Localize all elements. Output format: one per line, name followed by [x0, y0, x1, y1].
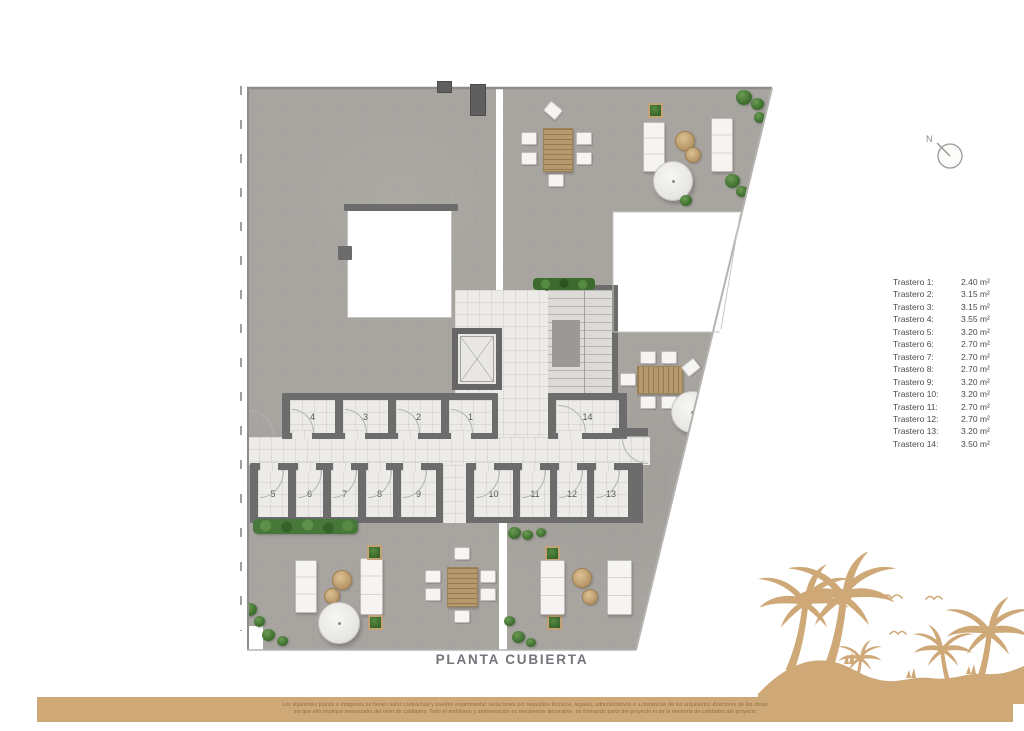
- legend-value: 3.20 m²: [961, 376, 990, 388]
- legend-row: Trastero 3:3.15 m²: [893, 301, 1023, 313]
- legend-label: Trastero 1:: [893, 276, 961, 288]
- legend-value: 2.70 m²: [961, 363, 990, 375]
- legend-label: Trastero 6:: [893, 338, 961, 350]
- legend-label: Trastero 5:: [893, 326, 961, 338]
- legend-label: Trastero 11:: [893, 401, 961, 413]
- legend-value: 2.70 m²: [961, 401, 990, 413]
- legend-label: Trastero 7:: [893, 351, 961, 363]
- legend-value: 3.15 m²: [961, 301, 990, 313]
- north-label: N: [926, 134, 933, 144]
- storage-legend: Trastero 1:2.40 m² Trastero 2:3.15 m² Tr…: [893, 276, 1023, 450]
- legend-value: 3.55 m²: [961, 313, 990, 325]
- legend-row: Trastero 10:3.20 m²: [893, 388, 1023, 400]
- legend-row: Trastero 14:3.50 m²: [893, 438, 1023, 450]
- legend-label: Trastero 9:: [893, 376, 961, 388]
- legend-row: Trastero 1:2.40 m²: [893, 276, 1023, 288]
- floor-plan: 4 3 2 1 14 5 6 7 8 9 10 11 12 13: [232, 78, 790, 662]
- legend-row: Trastero 5:3.20 m²: [893, 326, 1023, 338]
- legend-value: 2.70 m²: [961, 351, 990, 363]
- disclaimer-line-1: Los siguientes planos e imágenes no tien…: [37, 702, 1013, 709]
- legend-value: 3.20 m²: [961, 326, 990, 338]
- legend-value: 3.20 m²: [961, 388, 990, 400]
- disclaimer-line-2: sin que ello implique menoscabo del nive…: [37, 709, 1013, 716]
- legend-row: Trastero 9:3.20 m²: [893, 376, 1023, 388]
- legend-value: 2.40 m²: [961, 276, 990, 288]
- disclaimer-band: Los siguientes planos e imágenes no tien…: [37, 697, 1013, 722]
- legend-value: 3.15 m²: [961, 288, 990, 300]
- legend-row: Trastero 11:2.70 m²: [893, 401, 1023, 413]
- legend-label: Trastero 14:: [893, 438, 961, 450]
- property-boundary-dashes: [240, 86, 242, 631]
- legend-label: Trastero 12:: [893, 413, 961, 425]
- legend-row: Trastero 13:3.20 m²: [893, 425, 1023, 437]
- bird-icon: [926, 597, 942, 600]
- legend-row: Trastero 7:2.70 m²: [893, 351, 1023, 363]
- floorplan-page: 4 3 2 1 14 5 6 7 8 9 10 11 12 13: [0, 0, 1024, 731]
- legend-row: Trastero 6:2.70 m²: [893, 338, 1023, 350]
- palm-beach-silhouette: [758, 552, 1024, 704]
- legend-value: 2.70 m²: [961, 413, 990, 425]
- bird-icon: [890, 632, 906, 635]
- legend-label: Trastero 4:: [893, 313, 961, 325]
- plan-outline: [232, 78, 790, 662]
- legend-value: 2.70 m²: [961, 338, 990, 350]
- legend-label: Trastero 2:: [893, 288, 961, 300]
- north-indicator: N: [920, 128, 970, 178]
- legend-label: Trastero 10:: [893, 388, 961, 400]
- legend-label: Trastero 3:: [893, 301, 961, 313]
- legend-label: Trastero 8:: [893, 363, 961, 375]
- chimney-block: [437, 81, 452, 93]
- chimney-block: [470, 84, 486, 116]
- legend-row: Trastero 4:3.55 m²: [893, 313, 1023, 325]
- legend-row: Trastero 12:2.70 m²: [893, 413, 1023, 425]
- legend-row: Trastero 8:2.70 m²: [893, 363, 1023, 375]
- legend-label: Trastero 13:: [893, 425, 961, 437]
- legend-value: 3.50 m²: [961, 438, 990, 450]
- legend-row: Trastero 2:3.15 m²: [893, 288, 1023, 300]
- legend-value: 3.20 m²: [961, 425, 990, 437]
